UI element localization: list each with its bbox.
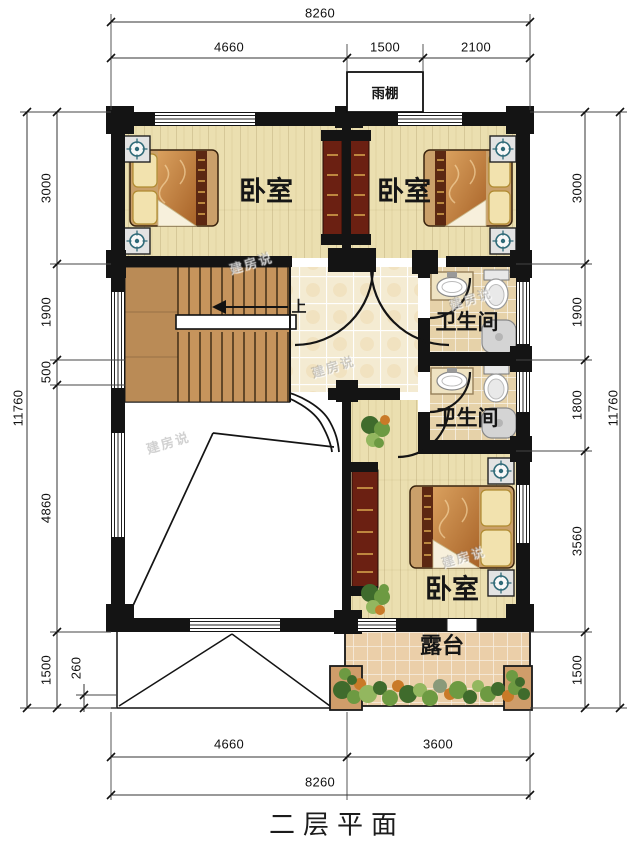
dim-left-seg-5: 1500 [39, 655, 54, 685]
dim-top-seg-1: 4660 [214, 40, 244, 55]
room-label-bedroom-top-right: 卧室 [377, 170, 431, 209]
door-opening-bath-lower [418, 372, 430, 412]
room-label-bedroom-bottom: 卧室 [425, 568, 479, 607]
window-right-bath-lower [517, 372, 529, 412]
staircase [125, 267, 296, 402]
dim-right-seg-5: 1500 [570, 655, 585, 685]
dim-top-seg-2: 1500 [370, 40, 400, 55]
room-label-bathroom-lower: 卫生间 [436, 402, 499, 432]
stair-handrail [176, 315, 296, 329]
room-label-terrace: 露台 [420, 628, 464, 660]
window-right-bedroom-bottom [517, 485, 529, 543]
dim-right-seg-2: 1900 [570, 297, 585, 327]
room-label-bedroom-top-left: 卧室 [239, 170, 293, 209]
dim-top-seg-3: 2100 [461, 40, 491, 55]
dim-left-seg-3: 500 [39, 361, 54, 384]
dim-bottom-seg-1: 4660 [214, 737, 244, 752]
window-right-bath-upper [517, 282, 529, 344]
stair-up-label: 上 [291, 296, 306, 317]
dim-left-total: 11760 [11, 390, 26, 427]
dim-right-seg-1: 3000 [570, 173, 585, 203]
door-opening-bath-upper [418, 278, 430, 318]
lower-roof [111, 632, 345, 708]
plan-title: 二层平面 [269, 805, 405, 842]
window-left-void [112, 433, 124, 537]
dim-bottom-seg-2: 3600 [423, 737, 453, 752]
dim-right-seg-3: 1800 [570, 390, 585, 420]
dim-bottom-total: 8260 [305, 775, 335, 790]
window-top-bedroom-left [155, 113, 255, 125]
dim-left-seg-1: 3000 [39, 173, 54, 203]
floor-plan-page: 8260 4660 1500 2100 11760 3000 1900 500 … [0, 0, 640, 855]
dim-right-seg-4: 3560 [570, 526, 585, 556]
dim-top-total: 8260 [305, 6, 335, 21]
dim-left-inner: 260 [69, 657, 84, 680]
window-bottom-bedroom [358, 619, 396, 631]
dim-right-total: 11760 [606, 390, 621, 427]
void-area [125, 390, 342, 618]
window-top-bedroom-right [398, 113, 462, 125]
floor-plan-drawing [0, 0, 640, 855]
dim-left-seg-2: 1900 [39, 297, 54, 327]
room-label-canopy: 雨棚 [372, 82, 399, 102]
room-label-bathroom-upper: 卫生间 [436, 306, 499, 336]
window-left-stairs [112, 292, 124, 388]
window-bottom-void [190, 619, 280, 631]
dim-left-seg-4: 4860 [39, 493, 54, 523]
